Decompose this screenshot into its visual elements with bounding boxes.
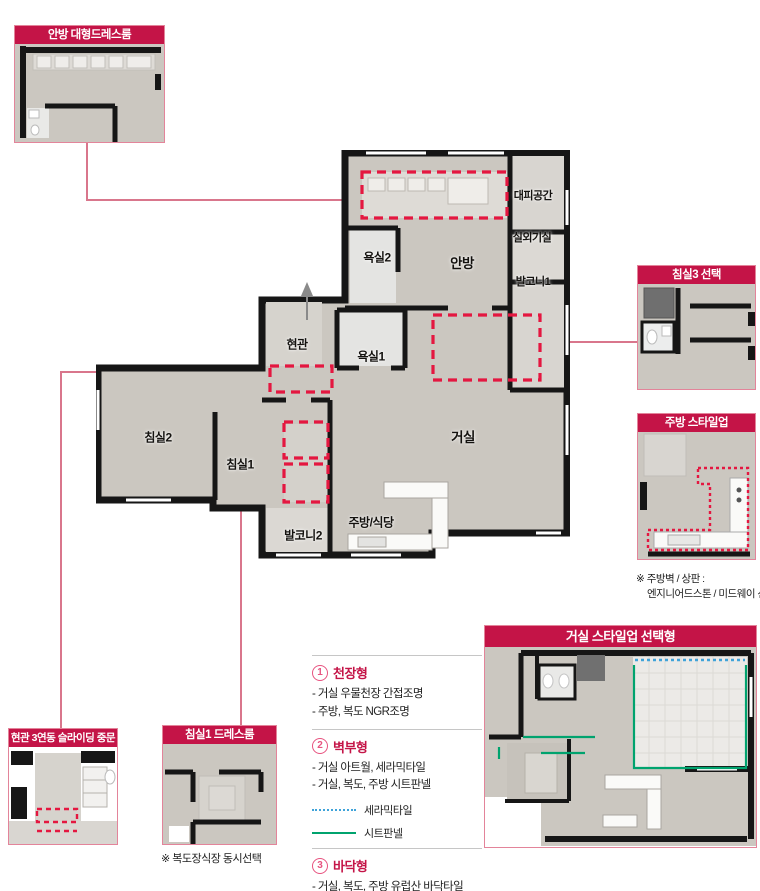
inset-bed3-option: 침실3 선택 — [637, 265, 756, 390]
option-section-floor: 3 바닥형 - 거실, 복도, 주방 유럽산 바닥타일 — [312, 856, 482, 891]
sheet-panel-line-sample — [312, 832, 356, 834]
leader-entrance-vertical — [60, 371, 62, 728]
option-item: - 거실, 복도, 주방 시트판넬 — [312, 777, 482, 795]
room-label-bed2: 침실2 — [144, 429, 171, 446]
inset-bed3-plan — [638, 284, 755, 389]
inset-bed3-option-title: 침실3 선택 — [638, 266, 755, 284]
ceramic-tile-line-sample — [312, 809, 356, 811]
room-label-master: 안방 — [450, 252, 474, 272]
circled-number-2: 2 — [312, 738, 328, 754]
room-label-outdoor-unit: 실외기실 — [513, 229, 551, 245]
main-floorplan — [96, 150, 570, 562]
divider — [312, 729, 482, 730]
divider — [312, 655, 482, 656]
option-item: - 거실, 복도, 주방 유럽산 바닥타일 — [312, 879, 482, 891]
option-title-floor: 바닥형 — [333, 856, 367, 875]
option-item: - 주방, 복도 NGR조명 — [312, 704, 482, 722]
circled-number-3: 3 — [312, 858, 328, 874]
room-label-escape: 대피공간 — [514, 187, 552, 203]
room-label-kitchen: 주방/식당 — [349, 514, 394, 531]
option-section-wall: 2 벽부형 - 거실 아트월, 세라믹타일 - 거실, 복도, 주방 시트판넬 … — [312, 737, 482, 842]
room-label-balcony1: 발코니1 — [516, 273, 550, 289]
inset-bed1-dressroom: 침실1 드레스룸 — [162, 725, 277, 845]
circled-number-1: 1 — [312, 665, 328, 681]
room-label-bath1: 욕실1 — [357, 348, 384, 365]
inset-master-dressroom: 안방 대형드레스룸 — [14, 25, 165, 143]
inset-kitchen-styleup: 주방 스타일업 — [637, 413, 756, 560]
leader-master-dress-vertical — [86, 143, 88, 201]
option-item: - 거실 아트월, 세라믹타일 — [312, 760, 482, 778]
inset-living-styleup-title: 거실 스타일업 선택형 — [485, 626, 756, 647]
floorplan-infographic: 대피공간 실외기실 욕실2 안방 발코니1 현관 욕실1 침실2 침실1 거실 … — [0, 0, 760, 891]
room-label-entry: 현관 — [286, 336, 307, 353]
room-label-bed1: 침실1 — [226, 456, 253, 473]
legend-ceramic-tile: 세라믹타일 — [312, 802, 482, 818]
option-title-wall: 벽부형 — [333, 737, 367, 756]
kitchen-note: ※ 주방벽 / 상판 : 엔지니어드스톤 / 미드웨이 선반 — [636, 572, 760, 601]
inset-bed1-dress-plan — [163, 744, 276, 844]
option-title-ceiling: 천장형 — [333, 663, 367, 682]
inset-master-dressroom-plan — [15, 44, 164, 142]
option-item: - 거실 우물천장 간접조명 — [312, 686, 482, 704]
inset-master-dressroom-title: 안방 대형드레스룸 — [15, 26, 164, 44]
inset-living-plan — [485, 647, 756, 846]
legend-sheet-panel: 시트판넬 — [312, 825, 482, 841]
inset-entrance-door-title: 현관 3연동 슬라이딩 중문 — [9, 729, 117, 747]
room-label-living: 거실 — [451, 426, 475, 446]
room-label-bath2: 욕실2 — [363, 249, 390, 266]
bed1-dress-note: ※ 복도장식장 동시선택 — [161, 852, 261, 867]
inset-living-styleup: 거실 스타일업 선택형 — [484, 625, 757, 848]
inset-kitchen-styleup-title: 주방 스타일업 — [638, 414, 755, 432]
finish-options-panel: 1 천장형 - 거실 우물천장 간접조명 - 주방, 복도 NGR조명 2 벽부… — [312, 648, 482, 891]
divider — [312, 848, 482, 849]
inset-bed1-dressroom-title: 침실1 드레스룸 — [163, 726, 276, 744]
inset-entrance-plan — [9, 747, 117, 844]
inset-kitchen-plan — [638, 432, 755, 559]
room-label-balcony2: 발코니2 — [284, 527, 322, 544]
inset-entrance-door: 현관 3연동 슬라이딩 중문 — [8, 728, 118, 845]
option-section-ceiling: 1 천장형 - 거실 우물천장 간접조명 - 주방, 복도 NGR조명 — [312, 663, 482, 722]
